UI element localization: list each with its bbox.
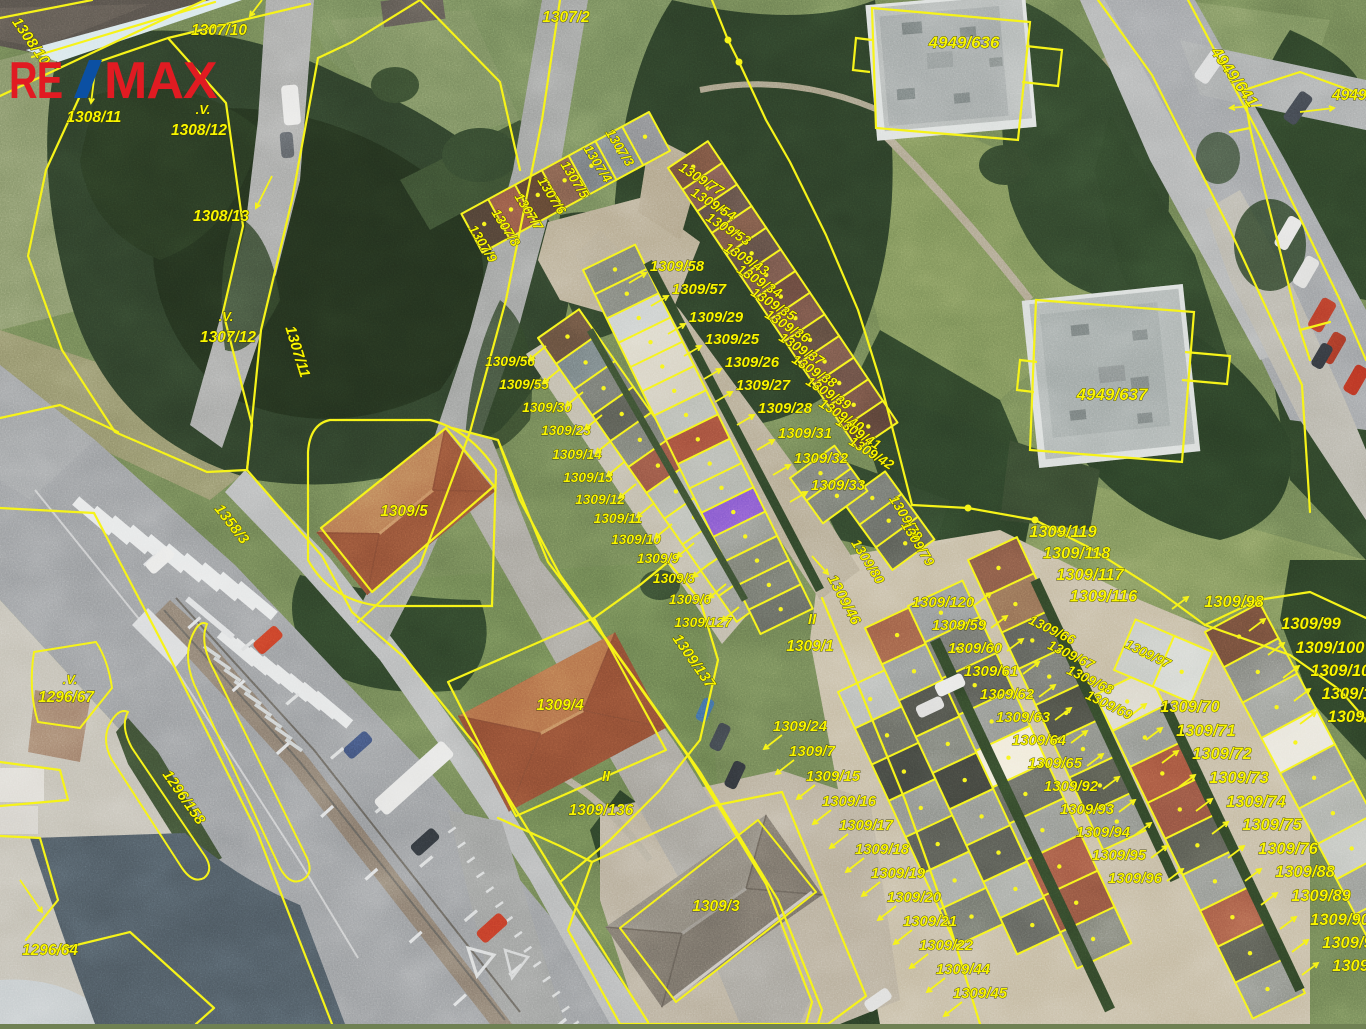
svg-text:1309/13: 1309/13 bbox=[563, 470, 613, 485]
svg-text:1309/65: 1309/65 bbox=[1028, 755, 1083, 772]
svg-text:1308/11: 1308/11 bbox=[67, 109, 122, 126]
svg-text:1309/89: 1309/89 bbox=[1291, 887, 1351, 905]
svg-text:1309/3: 1309/3 bbox=[692, 898, 740, 915]
svg-text:1309/120: 1309/120 bbox=[912, 594, 975, 611]
svg-text:1309/22: 1309/22 bbox=[919, 937, 974, 954]
svg-text:1309/24: 1309/24 bbox=[773, 718, 828, 735]
svg-text:II: II bbox=[808, 611, 817, 628]
svg-text:1309/102: 1309/102 bbox=[1322, 685, 1366, 703]
svg-text:1309/100: 1309/100 bbox=[1296, 639, 1366, 657]
svg-text:1309/71: 1309/71 bbox=[1176, 722, 1236, 740]
svg-text:1309/98: 1309/98 bbox=[1204, 593, 1264, 611]
svg-text:1309/93: 1309/93 bbox=[1060, 801, 1115, 818]
svg-text:1309/92: 1309/92 bbox=[1044, 778, 1099, 795]
svg-text:1309/26: 1309/26 bbox=[725, 354, 780, 371]
svg-text:1309/92: 1309/92 bbox=[1332, 957, 1366, 975]
svg-text:1309/32: 1309/32 bbox=[794, 450, 849, 467]
svg-text:4949/637: 4949/637 bbox=[1076, 385, 1149, 404]
svg-text:1309/17: 1309/17 bbox=[839, 817, 894, 834]
svg-text:1309/64: 1309/64 bbox=[1012, 732, 1067, 749]
svg-text:1309/6: 1309/6 bbox=[669, 592, 712, 607]
svg-text:1309/16: 1309/16 bbox=[822, 793, 877, 810]
svg-text:.V.: .V. bbox=[63, 672, 78, 687]
svg-text:1309/94: 1309/94 bbox=[1076, 824, 1131, 841]
svg-text:1309/118: 1309/118 bbox=[1043, 545, 1111, 563]
svg-text:1309/88: 1309/88 bbox=[1275, 863, 1335, 881]
svg-text:1309/25: 1309/25 bbox=[705, 331, 760, 348]
svg-text:1309/8: 1309/8 bbox=[653, 571, 696, 586]
svg-text:1309/27: 1309/27 bbox=[736, 377, 791, 394]
svg-text:1309/45: 1309/45 bbox=[953, 985, 1008, 1002]
svg-text:1309/12: 1309/12 bbox=[575, 492, 625, 507]
svg-text:1309/96: 1309/96 bbox=[1108, 870, 1163, 887]
svg-text:1309/119: 1309/119 bbox=[1029, 523, 1097, 541]
svg-text:1309/74: 1309/74 bbox=[1226, 793, 1286, 811]
svg-text:1309/5: 1309/5 bbox=[380, 503, 428, 520]
svg-text:1309/99: 1309/99 bbox=[1281, 615, 1341, 633]
svg-text:1309/11: 1309/11 bbox=[594, 511, 643, 526]
svg-text:1309/136: 1309/136 bbox=[569, 802, 634, 819]
svg-text:RE: RE bbox=[9, 51, 62, 110]
svg-text:1307/12: 1307/12 bbox=[200, 329, 256, 346]
svg-text:1308/13: 1308/13 bbox=[193, 208, 249, 225]
svg-text:1309/28: 1309/28 bbox=[758, 400, 813, 417]
svg-text:1307/10: 1307/10 bbox=[191, 22, 247, 39]
svg-text:4949/64: 4949/64 bbox=[1331, 87, 1366, 104]
svg-text:.V.: .V. bbox=[219, 309, 234, 324]
svg-text:1309/18: 1309/18 bbox=[855, 841, 910, 858]
svg-text:1309/30: 1309/30 bbox=[522, 400, 572, 415]
svg-text:1309/62: 1309/62 bbox=[980, 686, 1035, 703]
svg-text:1309/73: 1309/73 bbox=[1209, 769, 1269, 787]
svg-text:1309/95: 1309/95 bbox=[1092, 847, 1147, 864]
svg-text:1309/4: 1309/4 bbox=[536, 697, 584, 714]
svg-text:1309/15: 1309/15 bbox=[806, 768, 861, 785]
svg-text:1309/76: 1309/76 bbox=[1258, 840, 1318, 858]
svg-text:1309/91: 1309/91 bbox=[1322, 934, 1366, 952]
svg-text:1309/75: 1309/75 bbox=[1242, 816, 1302, 834]
svg-text:1309/57: 1309/57 bbox=[672, 281, 727, 298]
svg-text:1309/33: 1309/33 bbox=[811, 477, 866, 494]
svg-text:1309/29: 1309/29 bbox=[689, 309, 744, 326]
svg-text:1309/116: 1309/116 bbox=[1070, 588, 1138, 606]
svg-text:1309/23: 1309/23 bbox=[541, 423, 591, 438]
svg-text:1309/7: 1309/7 bbox=[789, 743, 836, 760]
svg-text:1309/103: 1309/103 bbox=[1328, 708, 1366, 726]
svg-text:1309/72: 1309/72 bbox=[1192, 745, 1252, 763]
svg-text:1296/67: 1296/67 bbox=[38, 689, 95, 706]
svg-text:1309/70: 1309/70 bbox=[1160, 698, 1220, 716]
svg-text:1296/64: 1296/64 bbox=[22, 942, 78, 959]
svg-text:1309/61: 1309/61 bbox=[964, 663, 1018, 680]
svg-text:1309/90: 1309/90 bbox=[1310, 911, 1366, 929]
svg-text:1309/63: 1309/63 bbox=[996, 709, 1051, 726]
svg-text:1309/101: 1309/101 bbox=[1311, 662, 1366, 680]
svg-text:1309/9: 1309/9 bbox=[637, 551, 680, 566]
svg-text:MAX: MAX bbox=[104, 52, 218, 110]
svg-text:1309/58: 1309/58 bbox=[650, 258, 705, 275]
svg-text:1309/56: 1309/56 bbox=[485, 354, 535, 369]
svg-text:1309/19: 1309/19 bbox=[871, 865, 926, 882]
svg-text:1308/12: 1308/12 bbox=[171, 122, 227, 139]
svg-text:1309/117: 1309/117 bbox=[1056, 566, 1124, 584]
svg-text:1309/20: 1309/20 bbox=[887, 889, 942, 906]
svg-text:1309/1: 1309/1 bbox=[786, 638, 833, 655]
svg-text:1309/21: 1309/21 bbox=[903, 913, 957, 930]
svg-text:1309/59: 1309/59 bbox=[932, 617, 987, 634]
svg-text:1307/2: 1307/2 bbox=[542, 9, 590, 26]
svg-text:1309/60: 1309/60 bbox=[948, 640, 1003, 657]
svg-text:II: II bbox=[602, 768, 611, 785]
svg-text:1309/55: 1309/55 bbox=[499, 377, 549, 392]
svg-text:1309/31: 1309/31 bbox=[778, 425, 832, 442]
svg-text:1309/44: 1309/44 bbox=[936, 961, 991, 978]
svg-text:4949/636: 4949/636 bbox=[928, 33, 1000, 52]
svg-text:1309/14: 1309/14 bbox=[552, 447, 602, 462]
svg-text:1309/10: 1309/10 bbox=[611, 532, 661, 547]
